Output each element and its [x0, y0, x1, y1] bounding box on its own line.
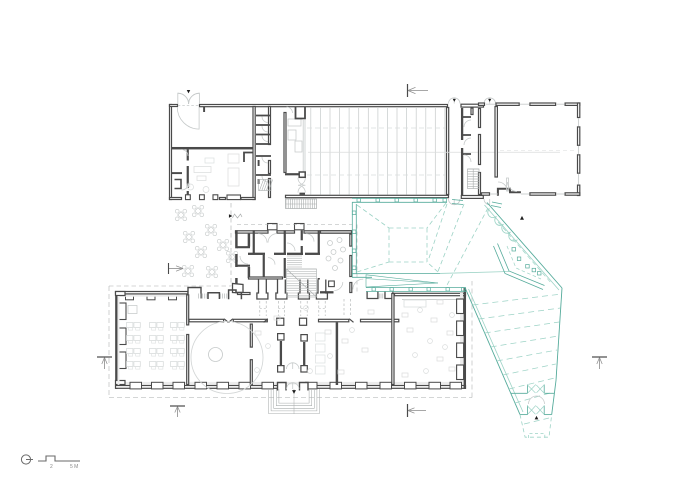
svg-text:5 M: 5 M	[70, 464, 78, 470]
svg-text:2: 2	[50, 464, 53, 470]
